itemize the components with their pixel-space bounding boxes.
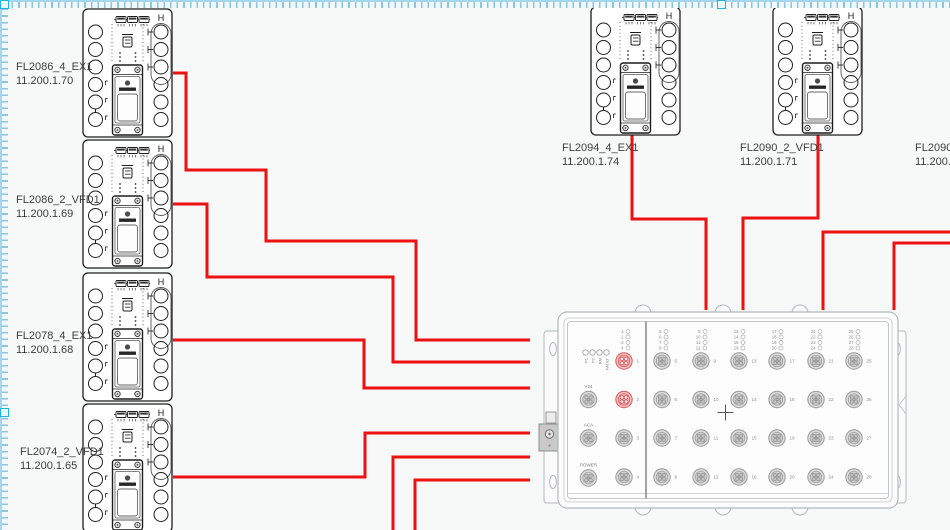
port-led-22 xyxy=(818,335,822,339)
port-led-21 xyxy=(818,330,822,334)
switch-port-22[interactable] xyxy=(808,391,824,407)
switch-port-16[interactable] xyxy=(731,469,747,485)
svg-text:15: 15 xyxy=(752,436,758,441)
svg-text:21: 21 xyxy=(811,329,816,334)
switch-port-14[interactable] xyxy=(731,391,747,407)
ground-clamp xyxy=(546,412,556,423)
port-led-27 xyxy=(856,341,860,345)
cable-7[interactable] xyxy=(632,133,706,310)
selection-border-left xyxy=(0,0,8,530)
port-led-12 xyxy=(703,346,707,350)
switch-connector-v24[interactable] xyxy=(580,391,596,407)
svg-text:25: 25 xyxy=(849,329,854,334)
svg-text:12: 12 xyxy=(714,475,720,480)
svg-text:6: 6 xyxy=(675,397,678,402)
selection-handle-top-left[interactable] xyxy=(0,0,9,9)
port-led-9 xyxy=(703,330,707,334)
switch-connector-power[interactable] xyxy=(580,470,596,486)
port-led-13 xyxy=(741,330,745,334)
port-led-6 xyxy=(664,335,668,339)
svg-text:11: 11 xyxy=(714,436,719,441)
switch-port-28[interactable] xyxy=(846,469,862,485)
device-fl2078-4-ex1[interactable] xyxy=(83,273,172,401)
svg-text:16: 16 xyxy=(752,475,758,480)
device-label-fl2094-4-ex1[interactable]: FL2094_4_EX1 11.200.1.74 xyxy=(562,142,638,169)
svg-text:26: 26 xyxy=(867,397,873,402)
switch-port-1[interactable] xyxy=(616,353,632,369)
device-ip: 11.200.1.74 xyxy=(562,156,638,170)
device-ip: 11.200.1.68 xyxy=(16,344,92,358)
device-label-fl2086-4-ex1[interactable]: FL2086_4_EX1 11.200.1.70 xyxy=(16,61,92,88)
switch-port-5[interactable] xyxy=(654,353,670,369)
svg-text:17: 17 xyxy=(790,359,796,364)
switch-port-25[interactable] xyxy=(846,353,862,369)
device-label-fl2086-2-vfd1[interactable]: FL2086_2_VFD1 11.200.1.69 xyxy=(16,194,100,221)
port-led-19 xyxy=(779,341,783,345)
switch-port-24[interactable] xyxy=(808,469,824,485)
port-led-28 xyxy=(856,346,860,350)
device-ip: 11.200.1.70 xyxy=(16,75,92,89)
status-led-rm xyxy=(597,350,602,355)
ethernet-switch[interactable]: 1122334455667788991010111112121313141415… xyxy=(539,305,906,515)
status-led-fault xyxy=(604,350,609,355)
device-fl2086-4-ex1[interactable] xyxy=(83,9,172,137)
device-label-fl2090-2-vfd1[interactable]: FL2090_2_VFD1 11.200.1.71 xyxy=(740,142,824,169)
switch-port-11[interactable] xyxy=(693,430,709,446)
device-fl2094-4-ex1[interactable] xyxy=(591,7,680,135)
status-led-p1 xyxy=(583,350,588,355)
port-led-16 xyxy=(741,346,745,350)
svg-text:21: 21 xyxy=(829,359,835,364)
cable-4[interactable] xyxy=(173,433,530,477)
device-ip: 11.200.1.69 xyxy=(16,208,100,222)
port-led-15 xyxy=(741,341,745,345)
port-led-11 xyxy=(703,341,707,345)
switch-port-17[interactable] xyxy=(769,353,785,369)
device-label-fl2078-4-ex1[interactable]: FL2078_4_EX1 11.200.1.68 xyxy=(16,330,92,357)
cable-1[interactable] xyxy=(173,73,530,340)
device-ip: 11.200.1. xyxy=(915,156,950,170)
device-name: FL2078_4_EX1 xyxy=(16,330,92,344)
svg-text:20: 20 xyxy=(772,346,777,351)
selection-border-top xyxy=(0,0,950,8)
selection-handle-top-mid[interactable] xyxy=(717,0,726,9)
svg-text:18: 18 xyxy=(790,397,796,402)
cable-10[interactable] xyxy=(894,243,950,310)
switch-port-12[interactable] xyxy=(693,469,709,485)
switch-port-2[interactable] xyxy=(616,391,632,407)
port-led-3 xyxy=(626,341,630,345)
svg-text:28: 28 xyxy=(867,475,873,480)
switch-port-15[interactable] xyxy=(731,430,747,446)
switch-port-3[interactable] xyxy=(616,430,632,446)
port-led-1 xyxy=(626,330,630,334)
svg-text:P2: P2 xyxy=(590,357,595,363)
svg-text:24: 24 xyxy=(811,346,816,351)
diagram-drawing: H xyxy=(0,0,950,530)
svg-text:28: 28 xyxy=(849,346,854,351)
switch-port-7[interactable] xyxy=(654,430,670,446)
switch-port-19[interactable] xyxy=(769,430,785,446)
device-name: FL2086_2_VFD1 xyxy=(16,194,100,208)
switch-port-9[interactable] xyxy=(693,353,709,369)
svg-text:27: 27 xyxy=(849,340,854,345)
device-name: FL2094_4_EX1 xyxy=(562,142,638,156)
svg-text:23: 23 xyxy=(829,436,835,441)
svg-text:18: 18 xyxy=(772,335,777,340)
device-ip: 11.200.1.65 xyxy=(20,460,104,474)
port-led-20 xyxy=(779,346,783,350)
svg-text:FAULT: FAULT xyxy=(604,357,609,370)
svg-text:26: 26 xyxy=(849,335,854,340)
svg-text:13: 13 xyxy=(734,329,739,334)
switch-port-23[interactable] xyxy=(808,430,824,446)
port-led-26 xyxy=(856,335,860,339)
svg-text:9: 9 xyxy=(714,359,717,364)
cable-3[interactable] xyxy=(173,340,530,388)
svg-text:17: 17 xyxy=(772,329,777,334)
status-led-p2 xyxy=(590,350,595,355)
svg-text:1: 1 xyxy=(637,359,640,364)
switch-port-20[interactable] xyxy=(769,469,785,485)
device-name: FL2090_4 xyxy=(915,142,950,156)
cable-6[interactable] xyxy=(415,480,530,530)
svg-text:24: 24 xyxy=(829,475,835,480)
switch-port-21[interactable] xyxy=(808,353,824,369)
svg-text:22: 22 xyxy=(829,397,835,402)
cable-2[interactable] xyxy=(173,204,530,362)
device-fl2090-2-vfd1[interactable] xyxy=(773,7,862,135)
svg-text:19: 19 xyxy=(790,436,796,441)
svg-text:7: 7 xyxy=(675,436,678,441)
device-name: FL2086_4_EX1 xyxy=(16,61,92,75)
svg-text:27: 27 xyxy=(867,436,873,441)
port-led-14 xyxy=(741,335,745,339)
svg-text:V24: V24 xyxy=(584,384,593,389)
port-led-5 xyxy=(664,330,668,334)
port-led-17 xyxy=(779,330,783,334)
svg-text:20: 20 xyxy=(790,475,796,480)
svg-text:ACA: ACA xyxy=(584,423,594,428)
port-led-2 xyxy=(626,335,630,339)
svg-text:13: 13 xyxy=(752,359,758,364)
svg-text:12: 12 xyxy=(696,346,701,351)
switch-port-26[interactable] xyxy=(846,391,862,407)
selection-handle-left-mid[interactable] xyxy=(0,408,9,417)
svg-text:23: 23 xyxy=(811,340,816,345)
switch-connector-aca[interactable] xyxy=(580,430,596,446)
svg-text:P1: P1 xyxy=(583,357,588,363)
port-led-23 xyxy=(818,341,822,345)
device-name: FL2074_2_VFD1 xyxy=(20,446,104,460)
port-led-24 xyxy=(818,346,822,350)
svg-text:16: 16 xyxy=(734,346,739,351)
switch-port-8[interactable] xyxy=(654,469,670,485)
svg-text:5: 5 xyxy=(675,359,678,364)
svg-text:15: 15 xyxy=(734,340,739,345)
svg-text:3: 3 xyxy=(637,436,640,441)
svg-text:10: 10 xyxy=(696,335,701,340)
port-led-18 xyxy=(779,335,783,339)
svg-text:14: 14 xyxy=(734,335,739,340)
port-led-10 xyxy=(703,335,707,339)
port-led-7 xyxy=(664,341,668,345)
switch-port-18[interactable] xyxy=(769,391,785,407)
switch-port-6[interactable] xyxy=(654,391,670,407)
svg-text:2: 2 xyxy=(637,397,640,402)
device-label-fl2090-4-partial[interactable]: FL2090_4 11.200.1. xyxy=(915,142,950,169)
svg-text:22: 22 xyxy=(811,335,816,340)
svg-text:25: 25 xyxy=(867,359,873,364)
switch-port-10[interactable] xyxy=(693,391,709,407)
svg-text:14: 14 xyxy=(752,397,758,402)
device-label-fl2074-2-vfd1[interactable]: FL2074_2_VFD1 11.200.1.65 xyxy=(20,446,104,473)
svg-text:19: 19 xyxy=(772,340,777,345)
svg-text:11: 11 xyxy=(696,340,701,345)
device-ip: 11.200.1.71 xyxy=(740,156,824,170)
switch-port-4[interactable] xyxy=(616,469,632,485)
svg-text:RM: RM xyxy=(597,358,602,364)
switch-port-27[interactable] xyxy=(846,430,862,446)
svg-text:10: 10 xyxy=(714,397,720,402)
diagram-canvas: H xyxy=(0,0,950,530)
svg-text:POWER: POWER xyxy=(580,463,598,468)
port-led-8 xyxy=(664,346,668,350)
device-name: FL2090_2_VFD1 xyxy=(740,142,824,156)
svg-text:4: 4 xyxy=(637,475,640,480)
port-led-25 xyxy=(856,330,860,334)
port-led-4 xyxy=(626,346,630,350)
svg-text:8: 8 xyxy=(675,475,678,480)
switch-port-13[interactable] xyxy=(731,353,747,369)
